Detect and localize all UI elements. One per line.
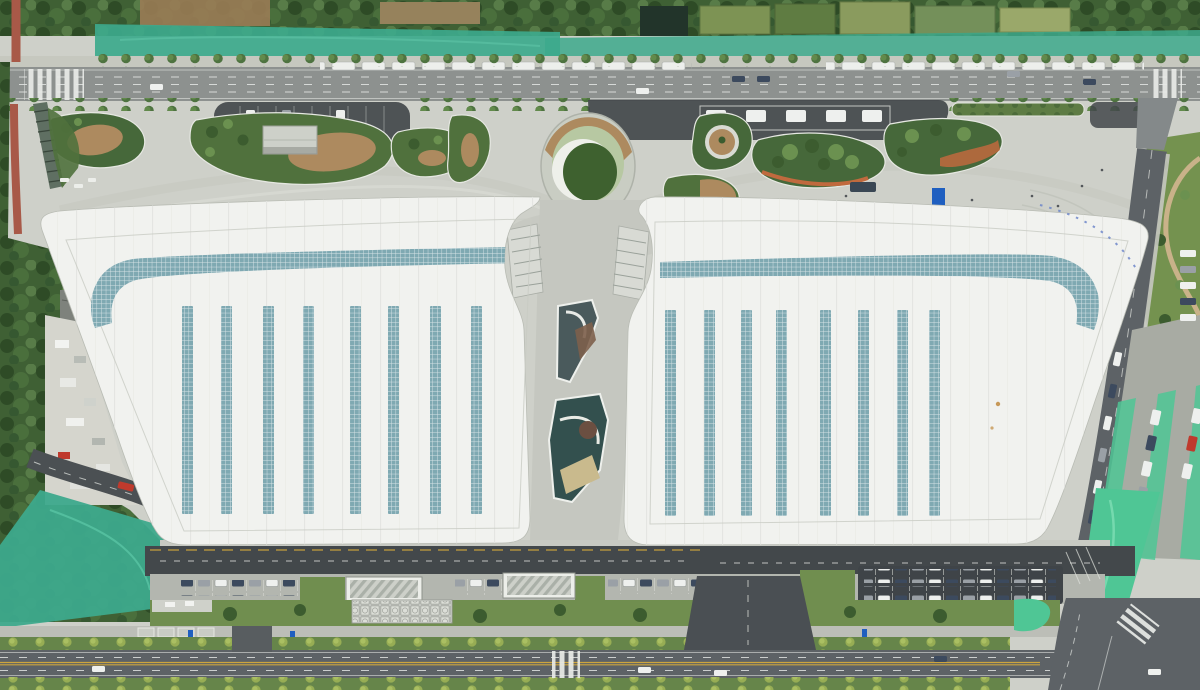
- escalator-ramp-left: [507, 224, 543, 298]
- parked-car-row: [455, 579, 503, 595]
- roof-skylight-stripe: [303, 306, 314, 514]
- roof-skylight-stripe: [430, 306, 441, 514]
- roof-skylight-stripe: [776, 310, 787, 516]
- pedestrian-dot: [1057, 205, 1060, 208]
- top-vegetation-band: [0, 0, 1200, 60]
- south-median-planter: [952, 103, 1084, 116]
- car: [150, 84, 163, 90]
- roof-skylight-stripe: [182, 306, 193, 514]
- escalator-ramp-right: [613, 226, 649, 300]
- parked-car-row: [180, 580, 300, 596]
- dirt-patch: [140, 0, 270, 26]
- west-connector-drive: [232, 626, 272, 652]
- car: [934, 656, 947, 662]
- tree: [409, 139, 420, 150]
- service-lawn-strip: [150, 600, 1060, 628]
- roof-skylight-stripe: [263, 306, 274, 514]
- parked-bus: [850, 182, 876, 192]
- median-south: [0, 677, 1010, 690]
- aerial-photo-transit-hub: [0, 0, 1200, 690]
- crosswalk: [24, 69, 84, 100]
- pedestrian-dot: [1081, 185, 1084, 188]
- roof-skylight-stripe: [858, 310, 869, 516]
- car: [92, 666, 105, 672]
- hvac-equipment-block: [352, 600, 452, 623]
- road-surface: [0, 67, 1200, 101]
- car: [1007, 71, 1020, 77]
- roof-skylight-stripe: [741, 310, 752, 516]
- tree: [434, 136, 443, 145]
- street-tree-row-north: [90, 54, 1200, 67]
- east-parking-lot: [858, 566, 1063, 604]
- center-connector-drive: [684, 576, 816, 650]
- roof-rust-stain: [990, 426, 993, 429]
- pedestrian-dot: [1031, 195, 1034, 198]
- roof-skylight-stripe: [221, 306, 232, 514]
- roof-skylight-stripe: [471, 306, 482, 514]
- roof-skylight-stripe: [704, 310, 715, 516]
- roof-skylight-stripe: [350, 306, 361, 514]
- mulch-patch: [418, 150, 446, 166]
- tree: [74, 118, 82, 126]
- car: [638, 667, 651, 673]
- boulevard-carriageways: [0, 650, 1200, 678]
- skylight-box: [346, 577, 422, 601]
- roof-rust-stain: [996, 402, 1000, 406]
- car: [732, 76, 745, 82]
- roof-skylight-stripe: [665, 310, 676, 516]
- crosswalk: [1152, 69, 1182, 100]
- street-tree-row-south: [0, 98, 212, 111]
- boulevard-crosswalk: [552, 651, 580, 678]
- sunken-lawn: [563, 143, 617, 201]
- car: [1148, 669, 1161, 675]
- pond: [640, 6, 688, 36]
- car: [714, 670, 727, 676]
- scene-canvas: [0, 0, 1200, 690]
- pedestrian-dot: [845, 195, 848, 198]
- mulch-patch: [461, 133, 479, 167]
- pedestrian-dot: [971, 199, 974, 202]
- dirt-patch: [380, 2, 480, 24]
- roof-skylight-stripe: [929, 310, 940, 516]
- red-bike-path: [14, 104, 18, 234]
- roof-skylight-stripe: [820, 310, 831, 516]
- street-tree-row-south: [415, 98, 590, 111]
- blue-road-sign: [862, 629, 867, 637]
- roof-skylight-stripe: [897, 310, 908, 516]
- pedestrian-dot: [1101, 169, 1104, 172]
- construction-materials: [152, 600, 212, 612]
- car: [1083, 79, 1096, 85]
- roof-skylight-stripe: [388, 306, 399, 514]
- service-area: [145, 540, 1135, 628]
- car: [757, 76, 770, 82]
- skylight-box: [503, 573, 575, 598]
- car: [636, 88, 649, 94]
- median-north: [0, 636, 1010, 651]
